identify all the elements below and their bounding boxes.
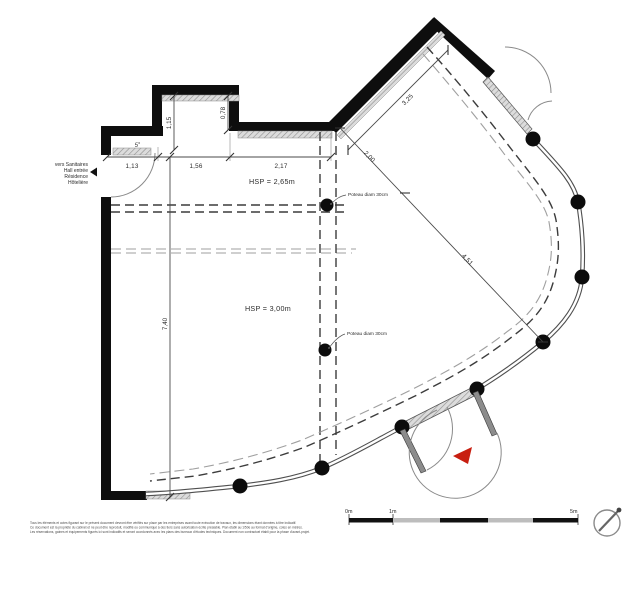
disclaimer-line-1: Tous les éléments et cotes figurant sur …	[30, 521, 296, 525]
column-facade-8	[233, 479, 248, 494]
floor-plan-canvas: 1,13 1,56 2,17 1,15 0,78 7,40 2,00 4,51 …	[0, 0, 632, 600]
door-leaf-south-right	[473, 391, 497, 436]
column-facade-7	[315, 461, 330, 476]
dim-diag-inner-1: 2,00	[362, 150, 376, 165]
column-interior-lower	[319, 344, 332, 357]
poteau-lower-label: Poteau diam 30cm	[347, 331, 387, 337]
scale-segment-1	[349, 518, 393, 523]
column-facade-3	[575, 270, 590, 285]
scale-label-0: 0m	[345, 509, 353, 515]
column-interior-upper	[321, 199, 334, 212]
disclaimer-line-2: Ce document est la propriété du cabinet …	[30, 526, 303, 530]
wall-top-bar-1	[152, 85, 239, 95]
dimension-lines: 1,13 1,56 2,17 1,15 0,78 7,40 2,00 4,51 …	[103, 45, 548, 501]
facade-curve-lower-inner	[146, 427, 402, 494]
entrance-door-band-south	[402, 385, 480, 431]
dim-recess-height: 1,15	[166, 116, 173, 129]
door-arc-ne-2	[528, 101, 552, 120]
entrance-glazing-ne	[483, 77, 532, 134]
scale-label-5: 5m	[570, 509, 578, 515]
column-facade-1	[526, 132, 541, 147]
facade-curve-upper-inner	[477, 139, 583, 389]
dim-top-3: 2,17	[274, 163, 287, 170]
scale-segment-3	[440, 518, 488, 523]
dim-top-1: 1,13	[125, 163, 138, 170]
north-compass-icon	[594, 508, 621, 536]
door-arc-ne-1	[505, 47, 551, 93]
facade-curve-lower	[146, 427, 402, 494]
hsp-main-label: HSP = 3,00m	[245, 304, 291, 313]
scale-label-1: 1m	[389, 509, 397, 515]
wall-diagonal-nw	[327, 18, 442, 133]
doors	[111, 47, 552, 498]
scale-segment-4	[488, 518, 533, 523]
direction-triangle-icon	[90, 168, 97, 177]
dim-diag-inner-2: 4,51	[460, 253, 474, 268]
door-leaf-south-left	[400, 429, 426, 473]
poteau-upper-label: Poteau diam 30cm	[348, 192, 388, 198]
wall-top-bar-2	[229, 122, 335, 131]
dashed-lines	[111, 47, 558, 481]
door-arc-west	[111, 153, 155, 197]
wall-diagonal-ne	[429, 17, 495, 79]
floor-plan-drawing: 1,13 1,56 2,17 1,15 0,78 7,40 2,00 4,51 …	[0, 0, 632, 600]
door-sill-left	[113, 148, 151, 155]
disclaimer-block: Tous les éléments et cotes figurant sur …	[30, 521, 310, 534]
scale-segment-2	[393, 518, 440, 523]
left-note-line-4: Hôtelière	[68, 180, 88, 186]
wall-bottom-stub	[101, 491, 147, 500]
hsp-upper-label: HSP = 2,65m	[249, 177, 295, 186]
door-slope-label: 5°	[134, 142, 141, 149]
scale-segment-5	[533, 518, 578, 523]
dim-top-2: 1,56	[189, 163, 202, 170]
exterior-walls	[101, 17, 495, 500]
wall-left-main	[101, 197, 111, 500]
window-strip-diagonal	[337, 31, 445, 139]
dim-left-height: 7,40	[162, 317, 169, 330]
disclaimer-line-3: Les réservations, gaines et équipements …	[30, 530, 310, 534]
scale-bar: 0m 1m 5m	[345, 509, 578, 525]
left-direction-note: vers Sanitaires Hall entrée Résidence Hô…	[55, 162, 97, 186]
window-strip-top-2	[238, 131, 332, 138]
entrance-arrow	[453, 447, 472, 464]
dim-step-height: 0,78	[220, 106, 227, 119]
column-facade-2	[571, 195, 586, 210]
